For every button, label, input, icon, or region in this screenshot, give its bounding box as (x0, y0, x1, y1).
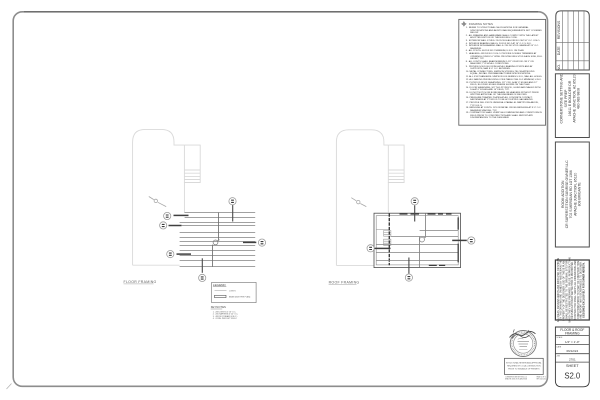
svg-text:KEYNOTES: KEYNOTES (211, 305, 226, 309)
svg-text:REQUIRED BY LOCAL JURISDICTION: REQUIRED BY LOCAL JURISDICTION (507, 364, 541, 367)
svg-text:CONTRACTOR SHALL VERIFY ALL DI: CONTRACTOR SHALL VERIFY ALL DIMENSIONS A… (574, 260, 577, 319)
svg-text:PROPERTY OF THE DESIGNER. USE: PROPERTY OF THE DESIGNER. USE OF THESE P… (563, 259, 566, 321)
svg-text:PAGE 4 OF 4: PAGE 4 OF 4 (537, 376, 546, 379)
svg-text:WHICH THEY WERE PREPARED. REUS: WHICH THEY WERE PREPARED. REUSE, REPRODU… (568, 257, 571, 322)
svg-text:DATE: DATE (556, 345, 561, 348)
svg-text:FLOOR FRAMING: FLOOR FRAMING (124, 280, 157, 284)
svg-text:2701: 2701 (569, 357, 576, 361)
svg-text:CONDITIONS PRIOR TO START OF C: CONDITIONS PRIOR TO START OF CONSTRUCTIO… (577, 261, 580, 319)
svg-text:SHEET: SHEET (566, 364, 579, 368)
svg-text:S2.0: S2.0 (564, 371, 581, 380)
svg-text:REVISIONS: REVISIONS (557, 20, 561, 39)
svg-text:06/12/24: 06/12/24 (566, 349, 578, 353)
svg-text:LEGEND: LEGEND (213, 283, 226, 287)
svg-text:NO.: NO. (557, 64, 561, 70)
svg-text:REV 06/12/24: REV 06/12/24 (537, 379, 547, 381)
svg-text:BY THIS DRAWING ARE OWNED BY A: BY THIS DRAWING ARE OWNED BY AND REMAIN … (560, 260, 563, 320)
svg-text:ROOF FRAMING: ROOF FRAMING (329, 280, 360, 284)
svg-text:PRIOR TO ISSUANCE OF PERMITS: PRIOR TO ISSUANCE OF PERMITS (508, 367, 540, 370)
svg-text:JOISTS: JOISTS (229, 290, 236, 292)
svg-text:ALL IDEAS, DESIGNS AND PLANS I: ALL IDEAS, DESIGNS AND PLANS INDICATED O… (557, 258, 560, 322)
svg-text:FRAMING NOTES: FRAMING NOTES (469, 22, 493, 26)
svg-text:JOB: JOB (556, 355, 560, 357)
svg-text:SCALE: SCALE (556, 336, 563, 339)
svg-text:DATE: DATE (557, 46, 561, 56)
svg-text:480-982-9808: 480-982-9808 (577, 88, 581, 109)
svg-text:FRAMING: FRAMING (565, 331, 580, 335)
svg-text:808 BRIGANTE: 808 BRIGANTE (577, 182, 581, 207)
svg-text:1/4" = 1'-0": 1/4" = 1'-0" (565, 340, 580, 344)
svg-text:AND REPORT ANY DISCREPANCIES T: AND REPORT ANY DISCREPANCIES TO DESIGNER… (580, 261, 583, 319)
svg-text:DESIGNED EXCLUSIVELY FOR OWNER: DESIGNED EXCLUSIVELY FOR OWNER HEREON. (584, 262, 586, 317)
svg-text:CORNERSTONE SETTING LLC: CORNERSTONE SETTING LLC (505, 377, 528, 379)
svg-text:4. CONN. PER DET. 3/S3.0: 4. CONN. PER DET. 3/S3.0 (213, 318, 237, 320)
svg-text:BEAM (SIZE PER PLAN): BEAM (SIZE PER PLAN) (229, 295, 251, 298)
svg-text:STRUCTURAL REVIEW AND APPROVAL: STRUCTURAL REVIEW AND APPROVAL (506, 361, 542, 364)
svg-text:SHALL BE RESTRICTED TO THE ORI: SHALL BE RESTRICTED TO THE ORIGINAL SITE… (565, 260, 568, 319)
svg-text:OR PUBLICATION BY ANY METHOD I: OR PUBLICATION BY ANY METHOD IS PROHIBIT… (571, 261, 574, 319)
